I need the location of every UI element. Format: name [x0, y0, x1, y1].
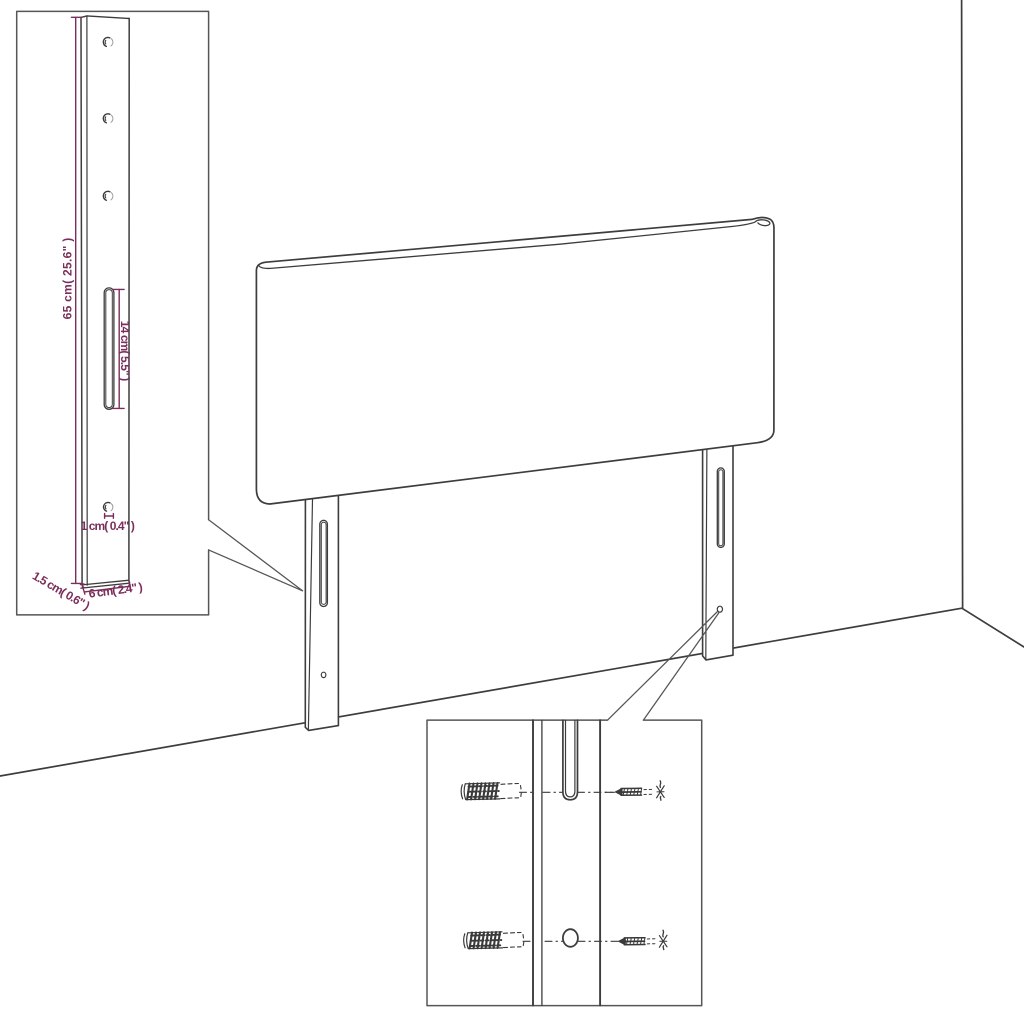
svg-text:1 cm( 0.4" ): 1 cm( 0.4" ): [81, 519, 135, 533]
svg-text:14 cm( 5.5" ): 14 cm( 5.5" ): [118, 321, 132, 382]
svg-text:65 cm( 25.6" ): 65 cm( 25.6" ): [61, 237, 75, 319]
